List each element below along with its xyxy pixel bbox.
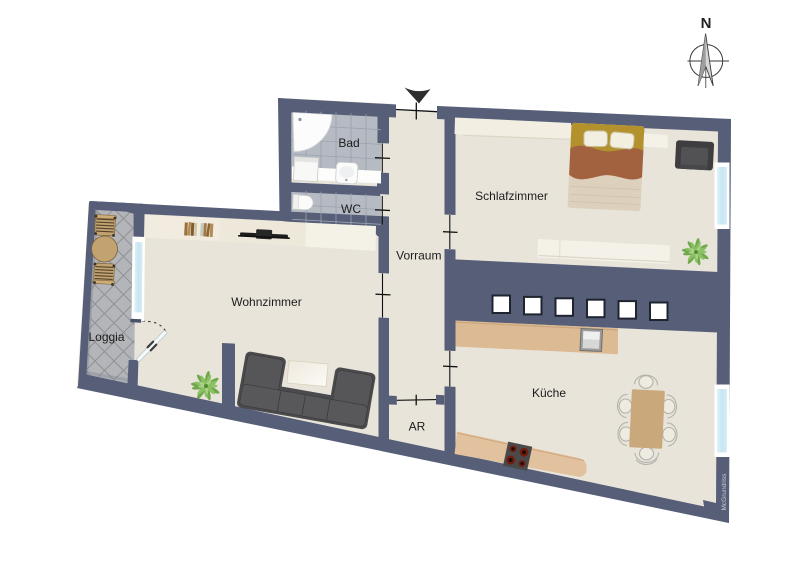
svg-text:McGrundriss: McGrundriss [721,473,728,511]
svg-text:Loggia: Loggia [88,330,124,344]
svg-text:Küche: Küche [532,386,566,400]
svg-text:Bad: Bad [338,136,359,150]
svg-text:N: N [701,15,712,32]
svg-text:Vorraum: Vorraum [396,249,441,263]
svg-text:Schlafzimmer: Schlafzimmer [475,189,548,203]
svg-text:WC: WC [341,202,361,216]
svg-text:AR: AR [409,420,426,434]
svg-text:Wohnzimmer: Wohnzimmer [231,295,301,309]
